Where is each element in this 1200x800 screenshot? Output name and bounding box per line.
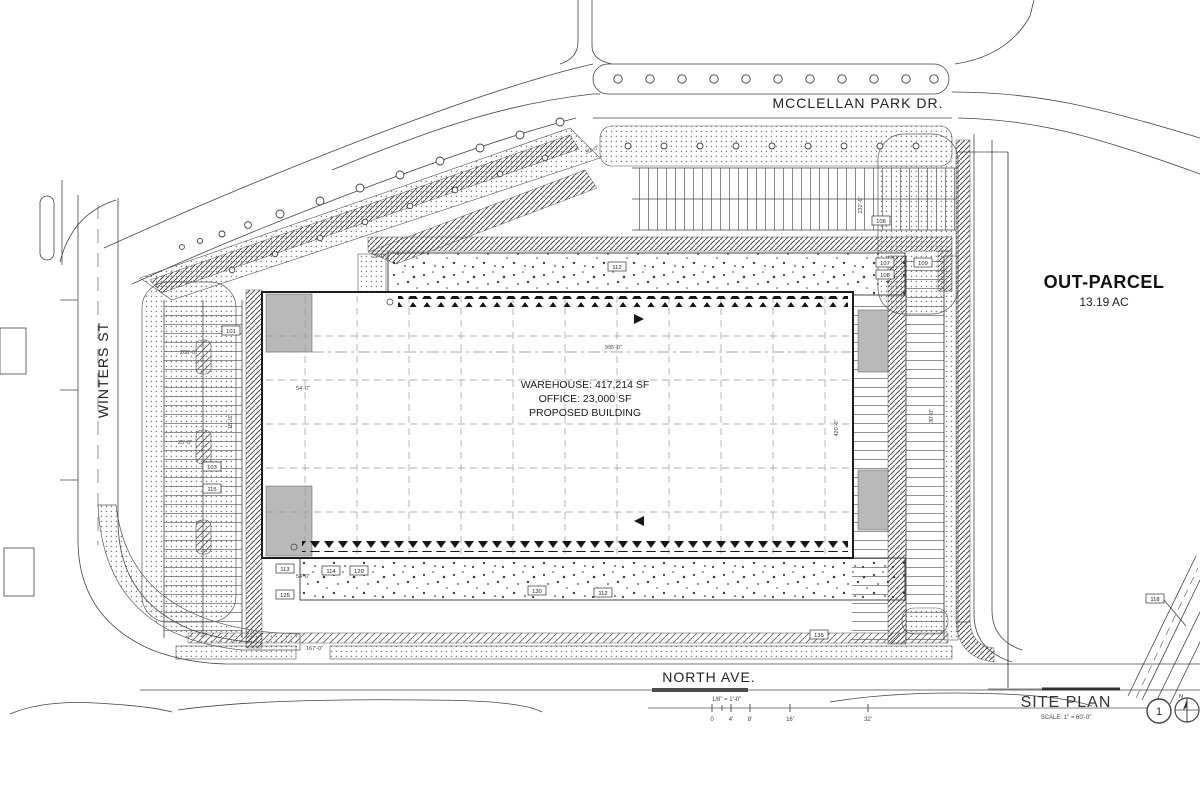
existing-west-features xyxy=(0,180,78,596)
street-label-winters: WINTERS ST xyxy=(95,322,111,418)
callout-118: 118 xyxy=(1150,597,1159,603)
callout-115: 115 xyxy=(207,487,216,493)
block-ne xyxy=(858,310,888,372)
callout-114: 114 xyxy=(326,569,336,575)
scale-tick-4: 4' xyxy=(729,717,733,723)
street-label-mcclellan: MCCLELLAN PARK DR. xyxy=(772,95,943,111)
building-label-line2: OFFICE: 23,000 SF xyxy=(539,393,632,405)
block-se xyxy=(858,470,888,530)
callout-112-north: 112 xyxy=(612,265,621,271)
street-label-north-ave: NORTH AVE. xyxy=(662,669,756,685)
callout-130: 130 xyxy=(532,589,542,595)
dim-south-frontage: 167'-0" xyxy=(306,646,323,652)
callout-109: 109 xyxy=(918,261,928,267)
scale-tick-16: 16' xyxy=(786,717,794,723)
building-label: WAREHOUSE: 417,214 SF OFFICE: 23,000 SF … xyxy=(521,379,650,419)
dock-doors-north xyxy=(398,296,848,307)
building-label-line1: WAREHOUSE: 417,214 SF xyxy=(521,379,650,391)
callout-112-south: 112 xyxy=(598,591,607,597)
callout-135: 135 xyxy=(814,633,824,639)
outparcel-area: 13.19 AC xyxy=(1079,295,1129,309)
north-ave-median xyxy=(652,688,748,692)
dim-building-length: 995'-0" xyxy=(605,345,622,351)
dim-building-depth: 420'-0" xyxy=(834,419,840,436)
building-footprint: WAREHOUSE: 417,214 SF OFFICE: 23,000 SF … xyxy=(262,292,888,558)
dim-west-bay: 208'-0" xyxy=(180,350,197,356)
drawing-scale-note: SCALE: 1" = 60'-0" xyxy=(1041,715,1092,721)
site-plan-sheet: WAREHOUSE: 417,214 SF OFFICE: 23,000 SF … xyxy=(0,0,1200,800)
callout-101: 101 xyxy=(226,329,236,335)
existing-diagonal-road xyxy=(1128,556,1200,704)
site-plan-drawing: WAREHOUSE: 417,214 SF OFFICE: 23,000 SF … xyxy=(0,0,1200,800)
dim-landscape-strip: 22'-0" xyxy=(372,254,386,260)
drawing-title: SITE PLAN xyxy=(1021,694,1112,711)
callout-120: 120 xyxy=(354,569,364,575)
dim-north-parking: 232'-6" xyxy=(858,196,864,213)
callout-108: 108 xyxy=(880,273,890,279)
title-block: SITE PLAN SCALE: 1" = 60'-0" 1 N xyxy=(988,689,1199,723)
outparcel-name: OUT-PARCEL xyxy=(1044,272,1165,292)
building-label-line3: PROPOSED BUILDING xyxy=(529,407,641,419)
callout-107: 107 xyxy=(880,261,890,267)
dim-stall-width: 18'-0" xyxy=(228,415,234,429)
scale-bar-label: 1/8" = 1'-0" xyxy=(712,697,741,703)
dim-dock-apron-s: 54'-0" xyxy=(296,574,310,580)
callout-103: 103 xyxy=(207,465,217,471)
callout-125: 125 xyxy=(280,593,290,599)
dim-dock-apron-n: 54'-0" xyxy=(296,386,310,392)
dim-drive-aisle-e: 30'-0" xyxy=(929,409,935,423)
scale-tick-32: 32' xyxy=(864,717,872,723)
scale-tick-8: 8' xyxy=(748,717,752,723)
north-arrow-icon: N xyxy=(1175,694,1199,722)
detail-number: 1 xyxy=(1156,706,1162,718)
callout-106: 106 xyxy=(876,219,886,225)
dock-doors-south xyxy=(302,541,848,552)
callout-113: 113 xyxy=(280,567,289,573)
scale-tick-0: 0 xyxy=(710,717,714,723)
north-arrow-n-label: N xyxy=(1179,694,1183,700)
dim-stall-depth: 25'-0" xyxy=(178,440,192,446)
